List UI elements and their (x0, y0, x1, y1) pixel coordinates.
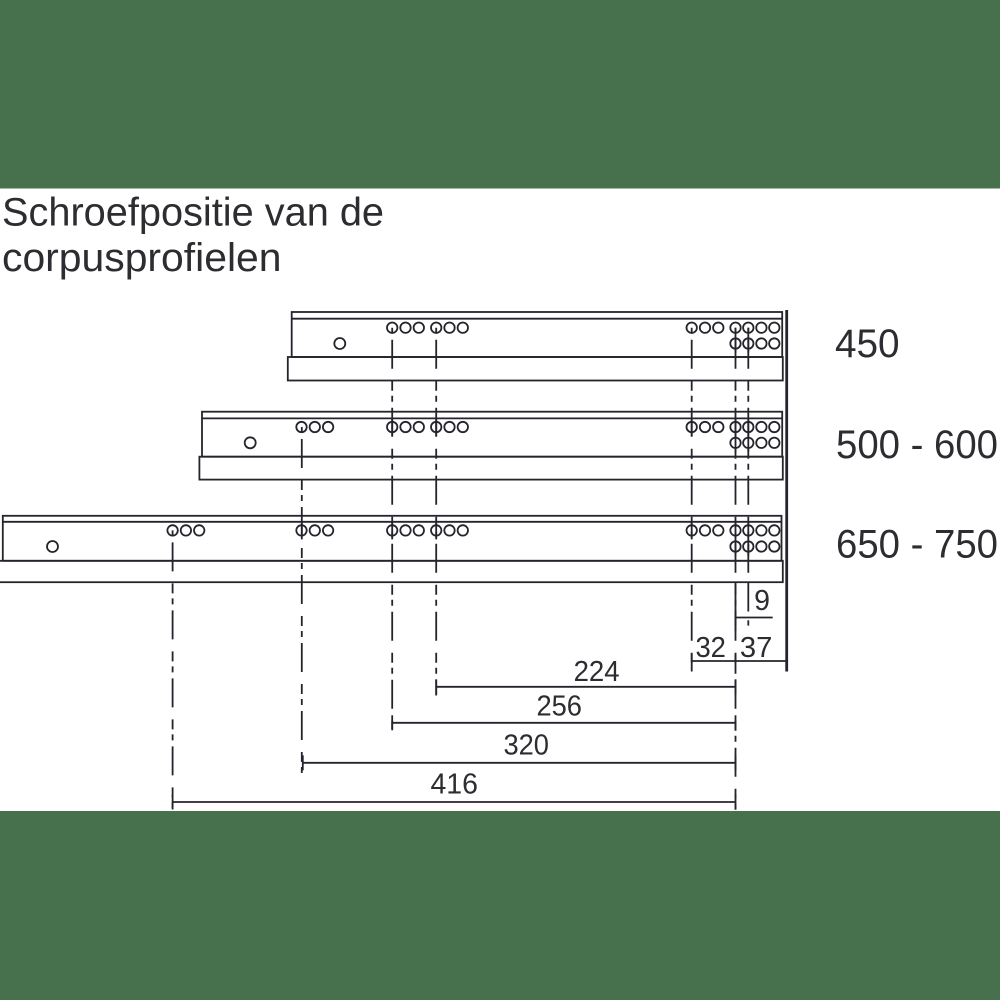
svg-text:256: 256 (536, 691, 582, 723)
svg-text:320: 320 (503, 730, 549, 762)
svg-text:500 - 600: 500 - 600 (836, 423, 998, 467)
svg-text:450: 450 (835, 322, 900, 366)
svg-text:32: 32 (695, 632, 726, 664)
svg-text:224: 224 (574, 656, 620, 688)
svg-text:corpusprofielen: corpusprofielen (2, 236, 282, 280)
svg-text:9: 9 (754, 585, 770, 617)
svg-text:650 - 750: 650 - 750 (836, 523, 998, 567)
svg-text:37: 37 (740, 632, 773, 664)
svg-text:416: 416 (430, 769, 478, 801)
svg-text:Schroefpositie van de: Schroefpositie van de (2, 191, 384, 235)
